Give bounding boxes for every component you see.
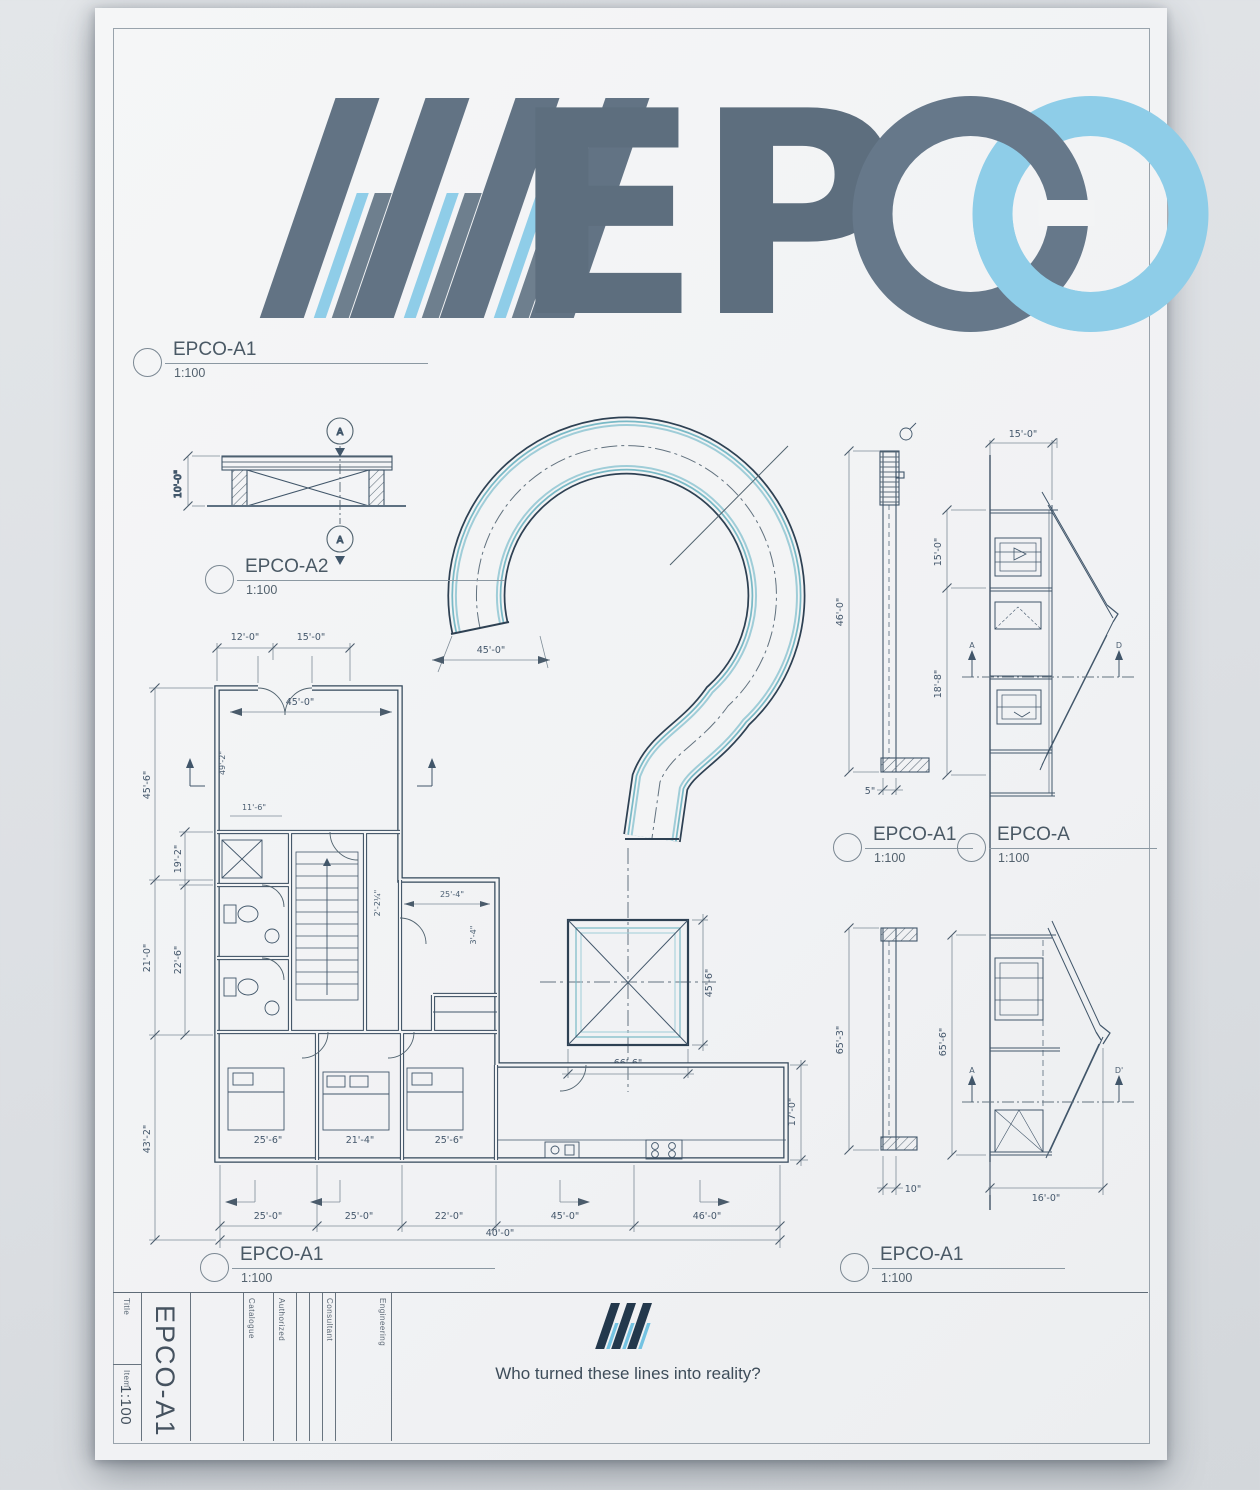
svg-text:43'-2": 43'-2" bbox=[142, 1125, 153, 1154]
elevation-top-drawing: 46'-0" 5" 15'-0" 15'-0" 18'-8" A D bbox=[835, 423, 1135, 1210]
svg-text:25'-6": 25'-6" bbox=[254, 1135, 283, 1146]
marker-circle-icon bbox=[200, 1253, 229, 1282]
titleblock-divider bbox=[391, 1293, 392, 1441]
marker-scale: 1:100 bbox=[872, 1269, 1065, 1285]
svg-text:25'-6": 25'-6" bbox=[435, 1135, 464, 1146]
marker-scale: 1:100 bbox=[165, 364, 428, 380]
marker-circle-icon bbox=[133, 348, 162, 377]
titleblock-divider bbox=[296, 1293, 297, 1441]
svg-text:10": 10" bbox=[905, 1184, 921, 1195]
section-a-drawing: 10'-0" A A bbox=[173, 418, 406, 565]
svg-text:15'-0": 15'-0" bbox=[1009, 429, 1038, 440]
marker-circle-icon bbox=[205, 565, 234, 594]
svg-text:5": 5" bbox=[865, 786, 875, 797]
svg-text:25'-0": 25'-0" bbox=[254, 1211, 283, 1222]
svg-text:22'-0": 22'-0" bbox=[435, 1211, 464, 1222]
poster-page: { "page": { "logo_text": "EP", "tagline"… bbox=[0, 0, 1260, 1490]
svg-text:A: A bbox=[337, 535, 344, 546]
titleblock-label: Catalogue bbox=[247, 1298, 256, 1339]
svg-text:25'-0": 25'-0" bbox=[345, 1211, 374, 1222]
titleblock-divider bbox=[273, 1293, 274, 1441]
svg-text:45'-6": 45'-6" bbox=[704, 969, 715, 998]
svg-text:A: A bbox=[969, 641, 975, 650]
marker-epco-a1-top: EPCO-A1 1:100 bbox=[133, 339, 428, 380]
titleblock-scale: 1:100 bbox=[117, 1385, 134, 1425]
svg-text:A: A bbox=[969, 1066, 975, 1075]
svg-text:16'-0": 16'-0" bbox=[1032, 1193, 1061, 1204]
marker-circle-icon bbox=[833, 833, 862, 862]
marker-scale: 1:100 bbox=[232, 1269, 495, 1285]
titleblock-sheet-number: EPCO-A1 bbox=[149, 1305, 180, 1438]
svg-text:45'-0": 45'-0" bbox=[286, 697, 315, 708]
svg-text:D': D' bbox=[1115, 1066, 1123, 1075]
marker-epco-a: EPCO-A 1:100 bbox=[957, 824, 1157, 865]
titleblock-divider bbox=[243, 1293, 244, 1441]
titleblock-divider bbox=[309, 1293, 310, 1441]
svg-text:10'-0": 10'-0" bbox=[173, 470, 184, 499]
svg-text:45'-0": 45'-0" bbox=[477, 645, 506, 656]
titleblock-divider bbox=[190, 1293, 191, 1441]
svg-text:45'-0": 45'-0" bbox=[551, 1211, 580, 1222]
svg-text:D: D bbox=[1116, 641, 1122, 650]
svg-text:46'-0": 46'-0" bbox=[693, 1211, 722, 1222]
marker-circle-icon bbox=[957, 833, 986, 862]
svg-text:19'-2": 19'-2" bbox=[173, 845, 184, 874]
svg-text:17'-0": 17'-0" bbox=[787, 1098, 798, 1127]
svg-text:21'-0": 21'-0" bbox=[142, 944, 153, 973]
marker-scale: 1:100 bbox=[237, 581, 505, 597]
svg-text:A: A bbox=[337, 427, 344, 438]
titleblock-divider bbox=[141, 1293, 142, 1441]
svg-text:21'-4": 21'-4" bbox=[346, 1135, 375, 1146]
titleblock-label: Title bbox=[122, 1298, 131, 1315]
drawing-linework: 45'-0" 45'-6" 66'-6" 10'-0" A A bbox=[0, 0, 1260, 1490]
footer-brand: Who turned these lines into reality? bbox=[468, 1301, 788, 1384]
footer-tagline: Who turned these lines into reality? bbox=[468, 1364, 788, 1384]
marker-title: EPCO-A1 bbox=[872, 1244, 1065, 1269]
svg-text:49'-2": 49'-2" bbox=[218, 751, 227, 775]
footer-logo-slashes-icon bbox=[595, 1301, 661, 1353]
marker-title: EPCO-A1 bbox=[232, 1244, 495, 1269]
svg-text:65'-3": 65'-3" bbox=[835, 1026, 846, 1055]
titleblock-divider bbox=[322, 1293, 323, 1441]
marker-epco-a1-bottom-left: EPCO-A1 1:100 bbox=[200, 1244, 495, 1285]
titleblock-label: Engineering bbox=[378, 1298, 387, 1346]
titleblock-divider bbox=[113, 1364, 141, 1365]
titleblock-label: Authorized bbox=[277, 1298, 286, 1341]
svg-text:46'-0": 46'-0" bbox=[835, 598, 846, 627]
marker-title: EPCO-A bbox=[989, 824, 1157, 849]
svg-text:25'-4": 25'-4" bbox=[440, 890, 464, 899]
svg-text:12'-0": 12'-0" bbox=[231, 632, 260, 643]
marker-epco-a1-mid: EPCO-A1 1:100 bbox=[833, 824, 973, 865]
marker-circle-icon bbox=[840, 1253, 869, 1282]
titleblock-divider bbox=[335, 1293, 336, 1441]
marker-epco-a1-bottom-right: EPCO-A1 1:100 bbox=[840, 1244, 1065, 1285]
svg-text:3'-4": 3'-4" bbox=[469, 926, 478, 945]
titleblock-label: Consultant bbox=[325, 1298, 334, 1341]
svg-text:15'-0": 15'-0" bbox=[297, 632, 326, 643]
svg-text:45'-6": 45'-6" bbox=[142, 771, 153, 800]
svg-text:15'-0": 15'-0" bbox=[933, 538, 944, 567]
elevation-bottom-drawing: 65'-3" 10" 65'-6" 16'-0" A D' bbox=[835, 921, 1135, 1204]
marker-scale: 1:100 bbox=[989, 849, 1157, 865]
svg-text:18'-8": 18'-8" bbox=[933, 670, 944, 699]
svg-text:22'-6": 22'-6" bbox=[173, 946, 184, 975]
svg-text:65'-6": 65'-6" bbox=[938, 1028, 949, 1057]
marker-title: EPCO-A2 bbox=[237, 556, 505, 581]
svg-text:11'-6": 11'-6" bbox=[242, 803, 266, 812]
marker-epco-a2: EPCO-A2 1:100 bbox=[205, 556, 505, 597]
svg-text:2'-2¼": 2'-2¼" bbox=[373, 890, 382, 917]
svg-text:40'-0": 40'-0" bbox=[486, 1228, 515, 1239]
marker-title: EPCO-A1 bbox=[165, 339, 428, 364]
